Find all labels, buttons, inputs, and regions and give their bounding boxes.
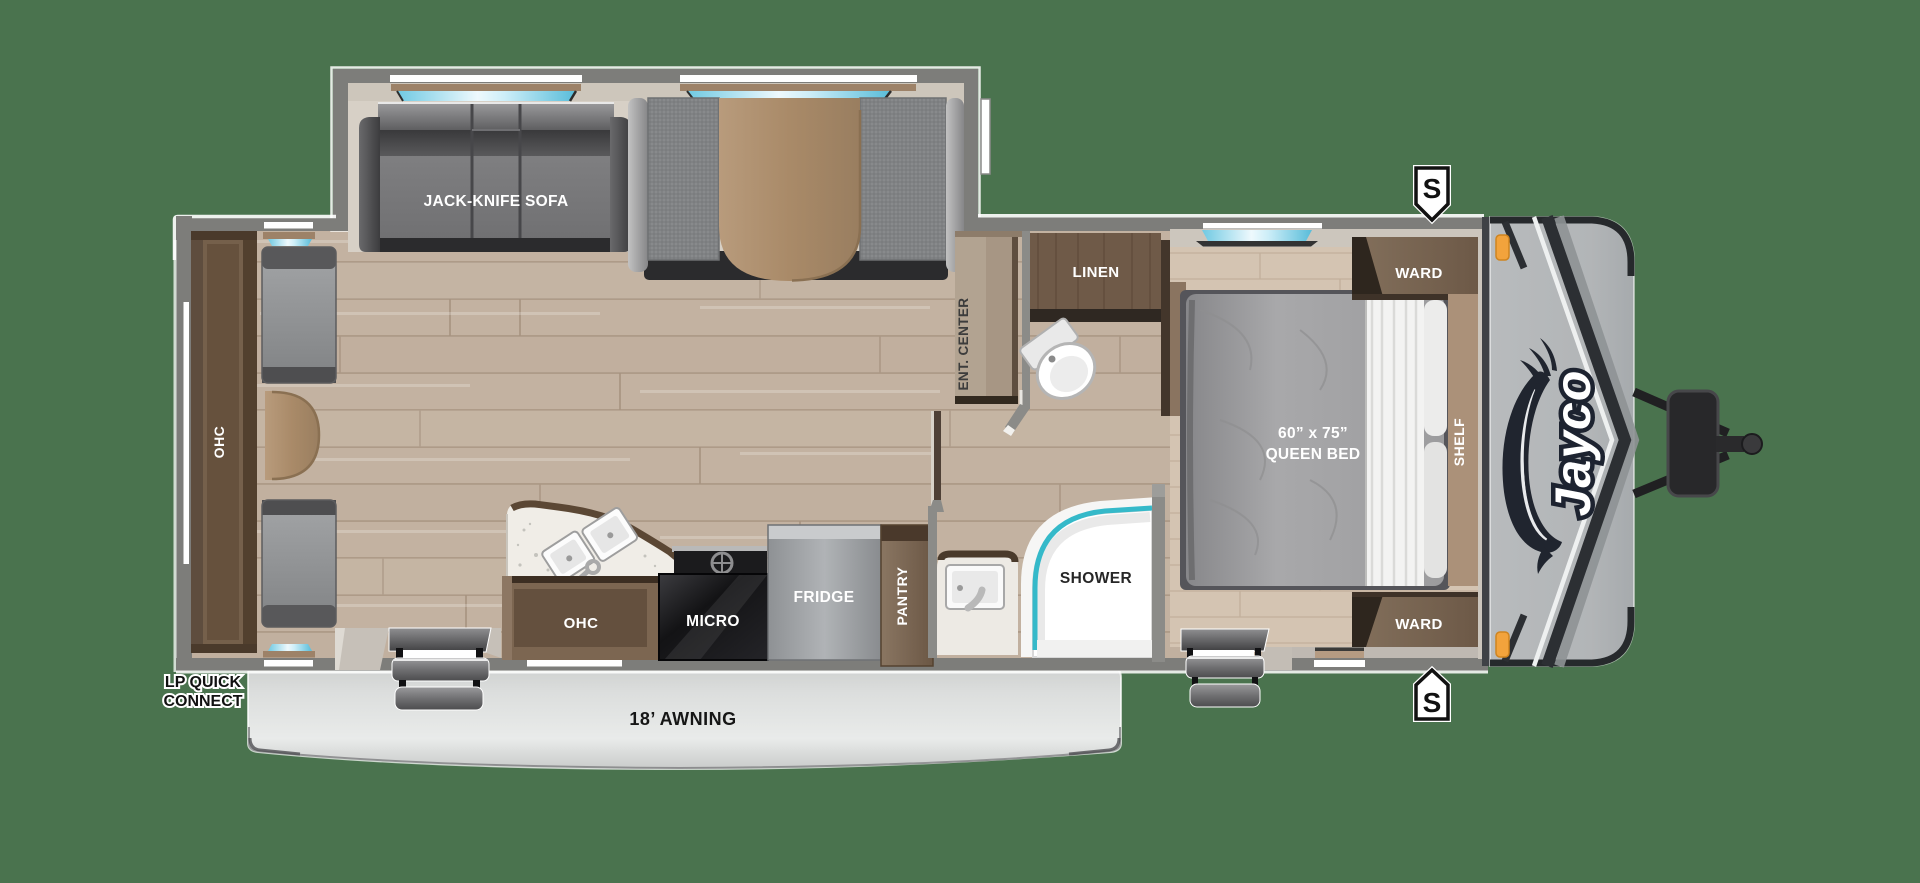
svg-text:JACK-KNIFE SOFA: JACK-KNIFE SOFA [424, 193, 569, 210]
svg-text:60” x 75”: 60” x 75” [1278, 425, 1348, 442]
svg-text:SHOWER: SHOWER [1060, 570, 1132, 587]
svg-text:LINEN: LINEN [1073, 264, 1120, 281]
svg-text:FRIDGE: FRIDGE [794, 589, 855, 606]
svg-text:LP QUICK: LP QUICK [165, 674, 242, 691]
svg-text:ENT. CENTER: ENT. CENTER [956, 298, 971, 391]
svg-text:WARD: WARD [1395, 265, 1442, 282]
svg-text:OHC: OHC [211, 426, 227, 459]
svg-text:QUEEN BED: QUEEN BED [1266, 446, 1361, 463]
svg-text:WARD: WARD [1395, 616, 1442, 633]
svg-text:18’ AWNING: 18’ AWNING [629, 709, 736, 729]
svg-text:PANTRY: PANTRY [894, 566, 910, 625]
svg-text:MICRO: MICRO [686, 613, 740, 630]
svg-text:S: S [1423, 173, 1442, 204]
svg-text:CONNECT: CONNECT [163, 693, 242, 710]
svg-text:Jayco: Jayco [1545, 370, 1601, 517]
svg-text:S: S [1423, 687, 1442, 718]
svg-text:SHELF: SHELF [1451, 418, 1467, 466]
svg-text:OHC: OHC [564, 615, 599, 632]
